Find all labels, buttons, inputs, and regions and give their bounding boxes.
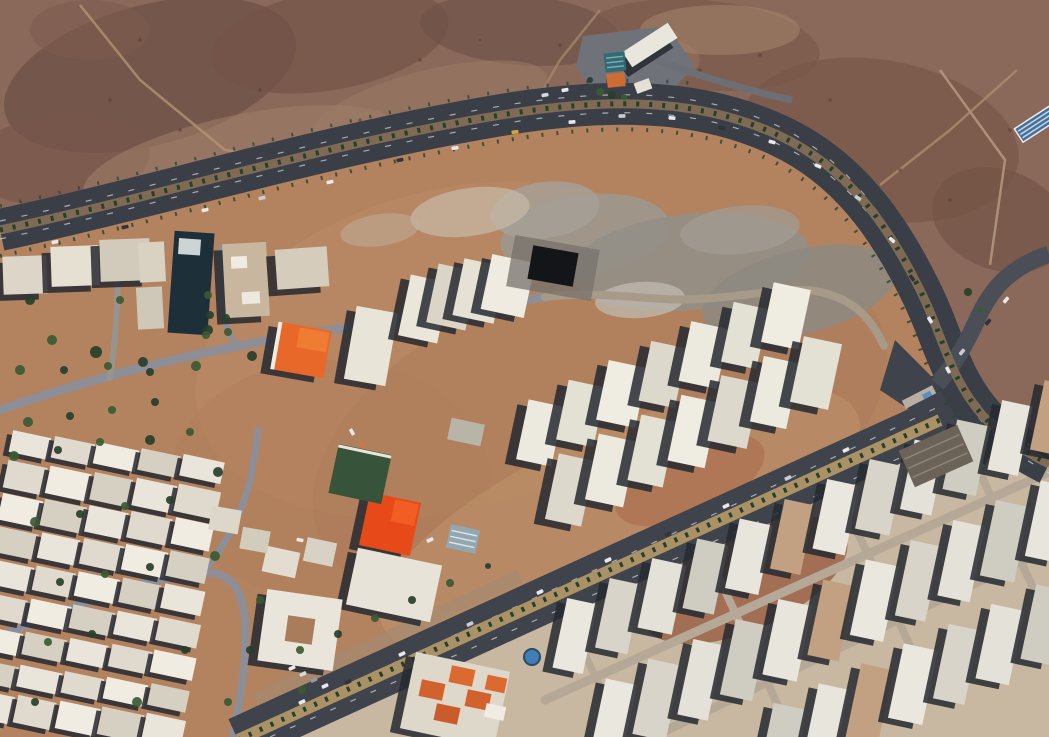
orange-roof	[606, 72, 625, 88]
house	[138, 241, 166, 282]
house	[136, 286, 164, 329]
vehicle	[618, 114, 625, 118]
tan-building	[213, 242, 270, 325]
house	[266, 246, 330, 296]
vehicle	[668, 116, 675, 120]
water-features	[524, 649, 540, 665]
teal-canopy	[604, 51, 627, 72]
dark-canopy	[167, 231, 214, 336]
satellite-imagery	[0, 0, 1049, 737]
vehicle	[568, 120, 575, 124]
house	[208, 506, 242, 535]
orange-warehouse	[260, 320, 331, 384]
satellite-map-view[interactable]: Aerial satellite view of a desert-edge t…	[0, 0, 1049, 737]
